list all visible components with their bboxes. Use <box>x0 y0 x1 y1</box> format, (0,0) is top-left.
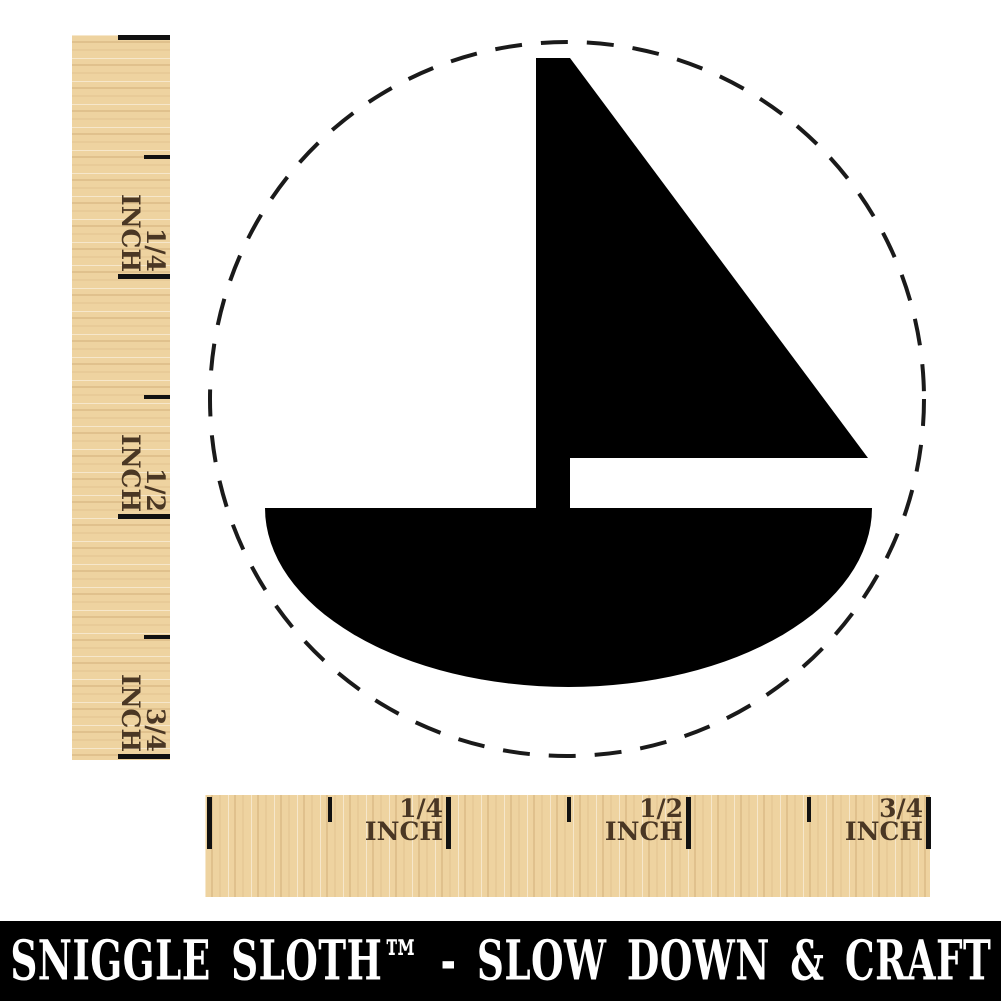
unit-text: INCH <box>365 817 443 846</box>
product-mockup: 1/4 INCH 1/2 INCH 3/4 INCH 1/4 INCH 1/2 … <box>0 0 1001 1001</box>
fraction-text: 1/2 <box>141 468 170 512</box>
fraction-text: 3/4 <box>141 708 170 752</box>
sailboat-sail <box>570 58 868 458</box>
horizontal-ruler-label-quarter-inch: 1/4 INCH <box>333 797 443 843</box>
unit-text: INCH <box>605 817 683 846</box>
unit-text: INCH <box>116 674 145 752</box>
vertical-ruler-tick-three-quarter <box>118 754 170 759</box>
horizontal-ruler-tick-three-quarter <box>926 797 931 849</box>
brand-banner-text: SNIGGLE SLOTH™ - SLOW DOWN & CRAFT <box>10 929 991 993</box>
fraction-text: 1/4 <box>141 228 170 272</box>
horizontal-ruler-label-half-inch: 1/2 INCH <box>573 797 683 843</box>
vertical-ruler-tick-quarter <box>118 274 170 279</box>
sailboat-hull <box>265 508 872 687</box>
unit-text: INCH <box>116 434 145 512</box>
horizontal-ruler-tick-eighth <box>328 797 332 822</box>
sailboat-stamp-graphic <box>200 32 936 768</box>
unit-text: INCH <box>845 817 923 846</box>
vertical-ruler-tick-zero <box>118 35 170 40</box>
horizontal-ruler-tick-three-eighth <box>567 797 571 822</box>
vertical-ruler-tick-half <box>118 514 170 519</box>
vertical-ruler-label-half-inch: 1/2 INCH <box>116 380 168 512</box>
horizontal-ruler-tick-half <box>686 797 691 849</box>
horizontal-ruler-tick-five-eighth <box>807 797 811 822</box>
brand-banner: SNIGGLE SLOTH™ - SLOW DOWN & CRAFT <box>0 921 1001 1001</box>
unit-text: INCH <box>116 194 145 272</box>
vertical-ruler-label-three-quarter-inch: 3/4 INCH <box>116 620 168 752</box>
horizontal-ruler-label-three-quarter-inch: 3/4 INCH <box>813 797 923 843</box>
vertical-ruler-label-quarter-inch: 1/4 INCH <box>116 140 168 272</box>
horizontal-ruler-tick-zero <box>207 797 212 849</box>
sailboat-mast <box>536 58 570 510</box>
horizontal-ruler-tick-quarter <box>446 797 451 849</box>
